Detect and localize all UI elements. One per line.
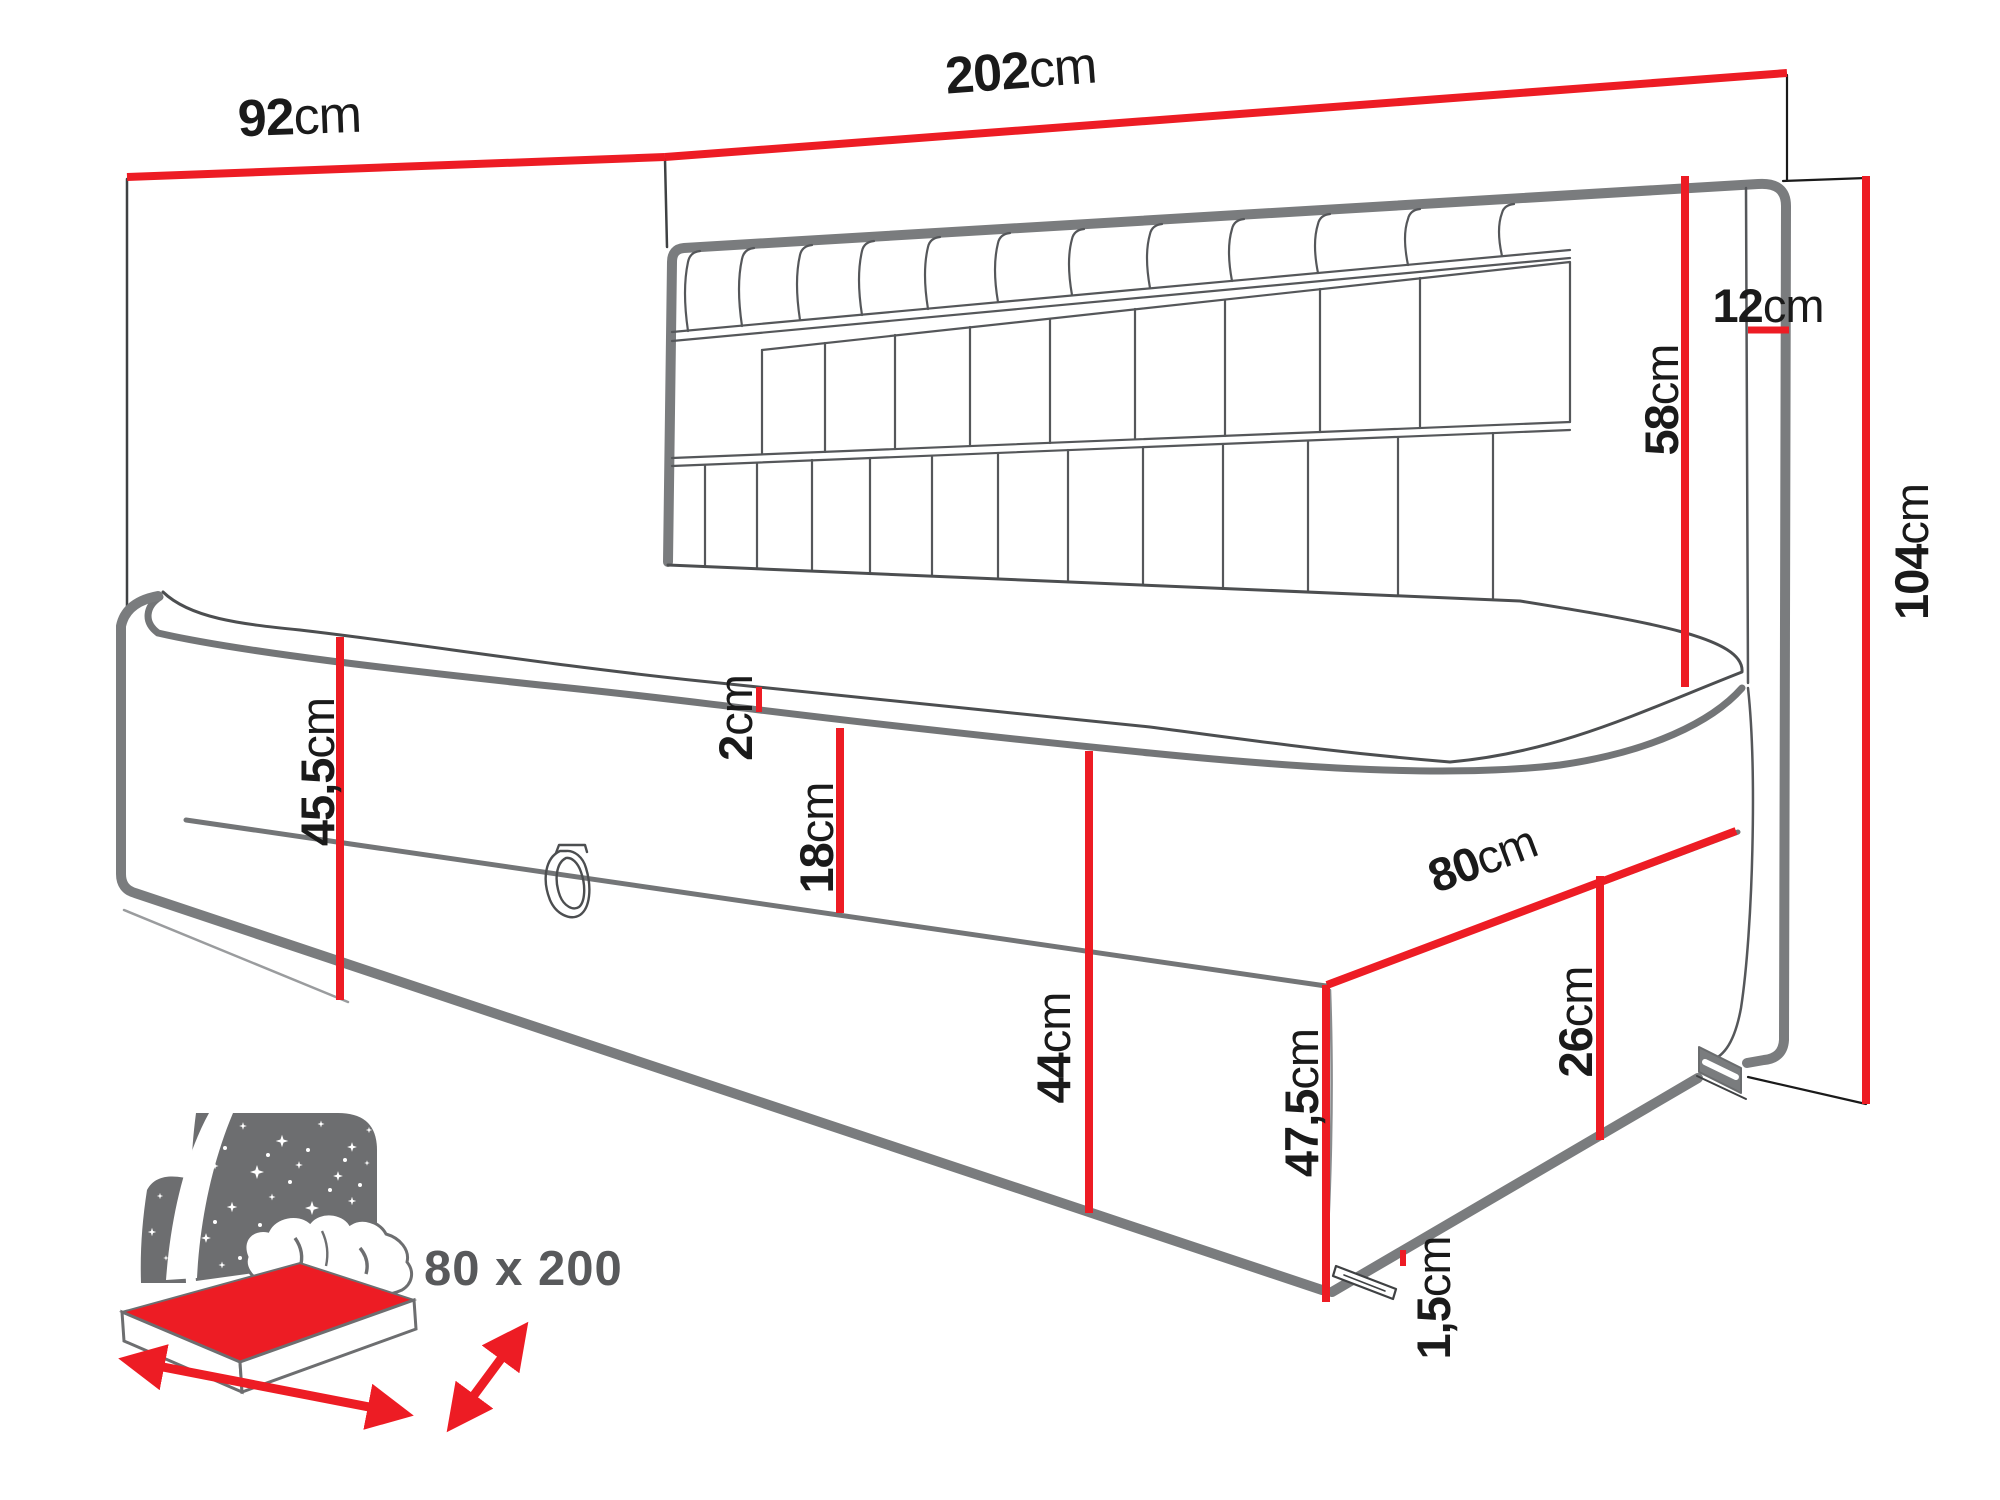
bed-bottom-right-edge [1332, 1078, 1698, 1292]
label-44cm: 44cm [1027, 993, 1080, 1104]
label-92cm: 92cm [237, 86, 362, 149]
dim-202-line [665, 73, 1787, 157]
label-45_5cm: 45,5cm [291, 698, 344, 846]
mattress-piping [148, 597, 1742, 771]
storage-seam [186, 820, 1326, 986]
headboard-front-edge [1746, 188, 1748, 683]
dim-92-line [127, 157, 665, 177]
headboard-niche [762, 262, 1570, 454]
label-26cm: 26cm [1549, 967, 1602, 1078]
label-18cm: 18cm [790, 783, 843, 894]
label-80cm: 80cm [1421, 814, 1543, 902]
extension-lines [1748, 75, 1866, 1104]
label-47_5cm: 47,5cm [1275, 1029, 1328, 1177]
bed-drawing [121, 75, 1866, 1299]
badge-size-label: 80 x 200 [424, 1242, 623, 1296]
headboard-rails [672, 250, 1570, 466]
right-side-contour [1706, 688, 1753, 1063]
bed-dimension-diagram: 92cm 202cm 12cm 58cm 104cm 45,5cm 2cm 18… [0, 0, 2000, 1500]
size-badge: 80 x 200 [122, 1113, 623, 1421]
label-202cm: 202cm [943, 36, 1098, 105]
label-104cm: 104cm [1885, 484, 1938, 620]
storage-handle [546, 845, 590, 917]
label-58cm: 58cm [1635, 345, 1688, 456]
headboard-outline [668, 184, 1786, 1063]
diagram-canvas: 92cm 202cm 12cm 58cm 104cm 45,5cm 2cm 18… [0, 0, 2000, 1500]
left-side-panel [127, 159, 667, 612]
label-2cm: 2cm [709, 675, 762, 761]
label-1_5cm: 1,5cm [1407, 1237, 1460, 1360]
label-12cm: 12cm [1713, 279, 1824, 332]
headboard-lower-slats [705, 433, 1493, 600]
